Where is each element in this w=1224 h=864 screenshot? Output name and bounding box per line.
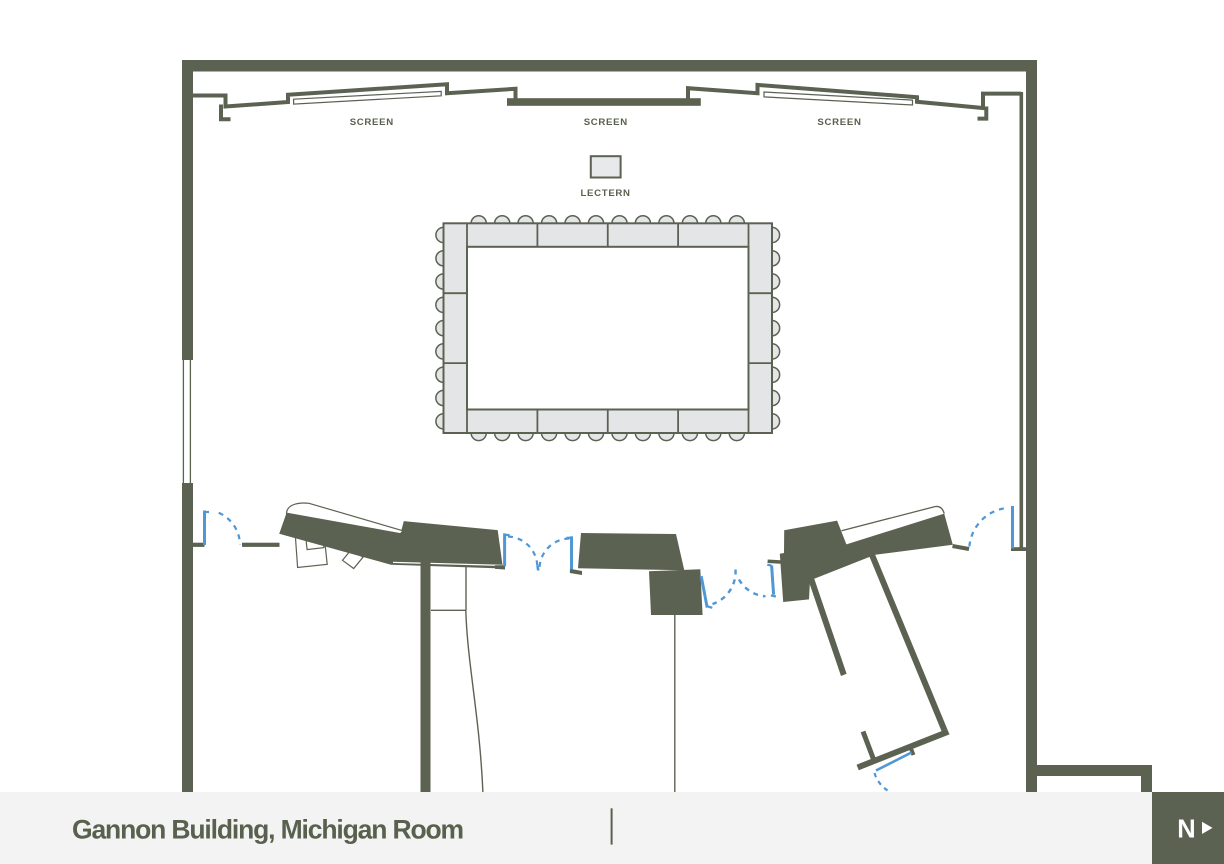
svg-text:SCREEN: SCREEN [350,117,394,128]
svg-text:Gannon Building, Michigan Room: Gannon Building, Michigan Room [72,815,463,845]
svg-text:N: N [1177,816,1195,844]
svg-text:SCREEN: SCREEN [584,117,628,128]
svg-text:LECTERN: LECTERN [580,188,630,199]
svg-text:SCREEN: SCREEN [817,117,861,128]
